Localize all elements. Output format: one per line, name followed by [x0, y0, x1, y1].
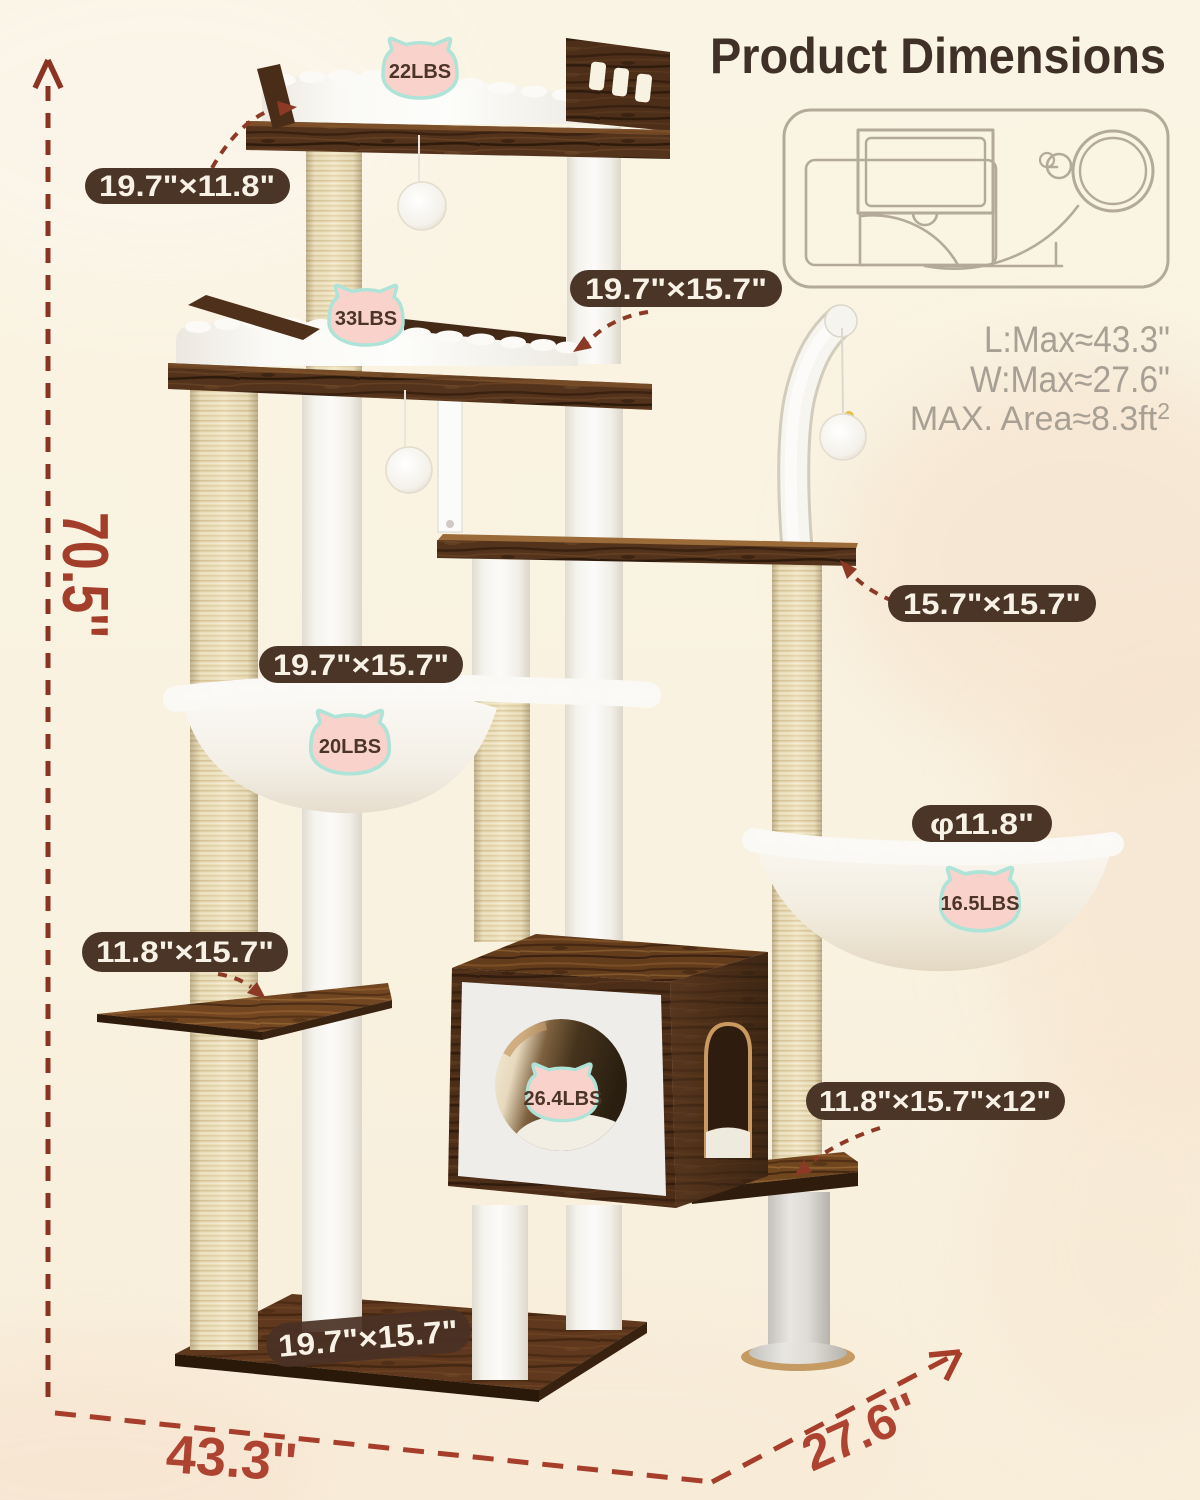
- svg-text:φ11.8": φ11.8": [930, 808, 1034, 841]
- svg-text:MAX. Area≈8.3ft2: MAX. Area≈8.3ft2: [910, 398, 1170, 438]
- svg-text:19.7"×15.7": 19.7"×15.7": [273, 649, 449, 682]
- svg-text:19.7"×11.8": 19.7"×11.8": [99, 170, 275, 203]
- svg-text:Product Dimensions: Product Dimensions: [710, 28, 1166, 84]
- svg-text:W:Max≈27.6": W:Max≈27.6": [970, 359, 1170, 400]
- svg-text:43.3'': 43.3'': [164, 1424, 299, 1493]
- svg-text:22LBS: 22LBS: [389, 61, 451, 83]
- svg-text:20LBS: 20LBS: [319, 736, 381, 758]
- svg-text:33LBS: 33LBS: [335, 308, 397, 330]
- svg-text:19.7"×15.7": 19.7"×15.7": [585, 273, 767, 306]
- svg-text:15.7"×15.7": 15.7"×15.7": [903, 588, 1081, 621]
- svg-text:70.5'': 70.5'': [49, 512, 121, 638]
- svg-text:11.8"×15.7": 11.8"×15.7": [96, 936, 274, 969]
- svg-text:11.8"×15.7"×12": 11.8"×15.7"×12": [819, 1086, 1051, 1118]
- svg-text:16.5LBS: 16.5LBS: [941, 893, 1020, 915]
- svg-text:26.4LBS: 26.4LBS: [524, 1088, 603, 1110]
- svg-text:L:Max≈43.3": L:Max≈43.3": [984, 319, 1170, 360]
